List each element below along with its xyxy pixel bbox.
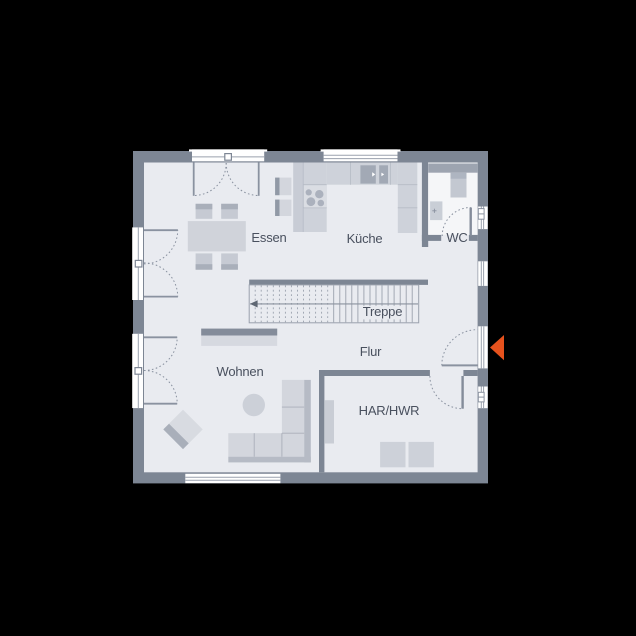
svg-text:Treppe: Treppe: [363, 304, 403, 319]
svg-text:HAR/HWR: HAR/HWR: [359, 403, 420, 418]
svg-text:Flur: Flur: [360, 344, 382, 359]
svg-text:Küche: Küche: [347, 231, 383, 246]
svg-text:Essen: Essen: [251, 230, 286, 245]
svg-text:Wohnen: Wohnen: [217, 364, 264, 379]
svg-text:WC: WC: [446, 230, 467, 245]
